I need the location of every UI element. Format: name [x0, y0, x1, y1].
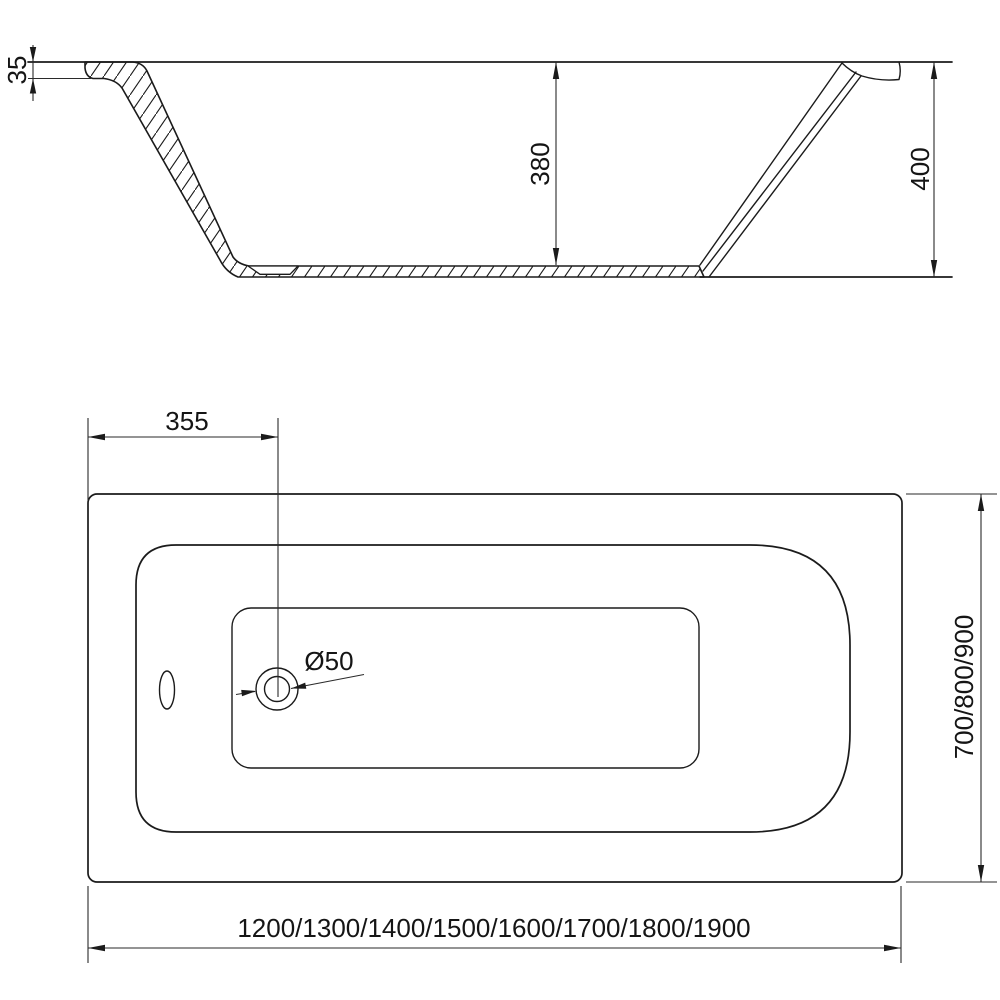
overflow-hole — [160, 671, 175, 709]
leader-lines — [236, 675, 364, 695]
dimension-rim-thickness: 35 — [2, 45, 91, 101]
arrowhead-right — [261, 434, 278, 440]
inner-depth-label: 380 — [525, 142, 555, 185]
drain-hole — [265, 677, 290, 702]
arrowhead-up — [931, 62, 937, 79]
arrowhead-right — [241, 690, 256, 696]
plan-view: 355 Ø50 1200/1300/1400/1500/1600/1700/18… — [88, 406, 997, 963]
dimension-drain-offset: 355 — [88, 406, 278, 697]
dimension-drain-diameter: Ø50 — [236, 646, 364, 696]
arrowhead-down — [978, 865, 984, 882]
bathtub-technical-drawing: 35 380 400 — [0, 0, 1000, 1000]
arrowhead-left — [291, 683, 306, 689]
dimension-total-height: 400 — [905, 62, 937, 277]
tub-wall-section — [85, 62, 704, 277]
total-height-label: 400 — [905, 147, 935, 190]
right-rim-profile — [842, 62, 900, 80]
tub-outer-edge — [88, 494, 902, 882]
dim-lines — [88, 418, 278, 697]
tub-rim-inner-edge — [136, 545, 850, 832]
drain-offset-label: 355 — [165, 406, 208, 436]
rim-thickness-label: 35 — [2, 56, 32, 85]
width-options-label: 700/800/900 — [949, 615, 979, 760]
right-wall-lines — [700, 63, 861, 277]
side-section-view: 35 380 400 — [2, 45, 952, 277]
dim-lines — [28, 45, 91, 101]
arrowhead-up — [978, 494, 984, 511]
arrowhead-left — [88, 434, 105, 440]
dimension-inner-depth: 380 — [525, 62, 559, 265]
arrowhead-left — [88, 945, 105, 951]
length-options-label: 1200/1300/1400/1500/1600/1700/1800/1900 — [237, 913, 750, 943]
arrowhead-right — [884, 945, 901, 951]
dimension-length-options: 1200/1300/1400/1500/1600/1700/1800/1900 — [88, 886, 901, 963]
drain-diameter-label: Ø50 — [304, 646, 353, 676]
arrowhead-down — [931, 260, 937, 277]
dimension-width-options: 700/800/900 — [906, 494, 997, 882]
arrowhead-up — [553, 62, 559, 79]
arrowhead-down — [553, 248, 559, 265]
drain-outer-ring — [256, 668, 298, 710]
